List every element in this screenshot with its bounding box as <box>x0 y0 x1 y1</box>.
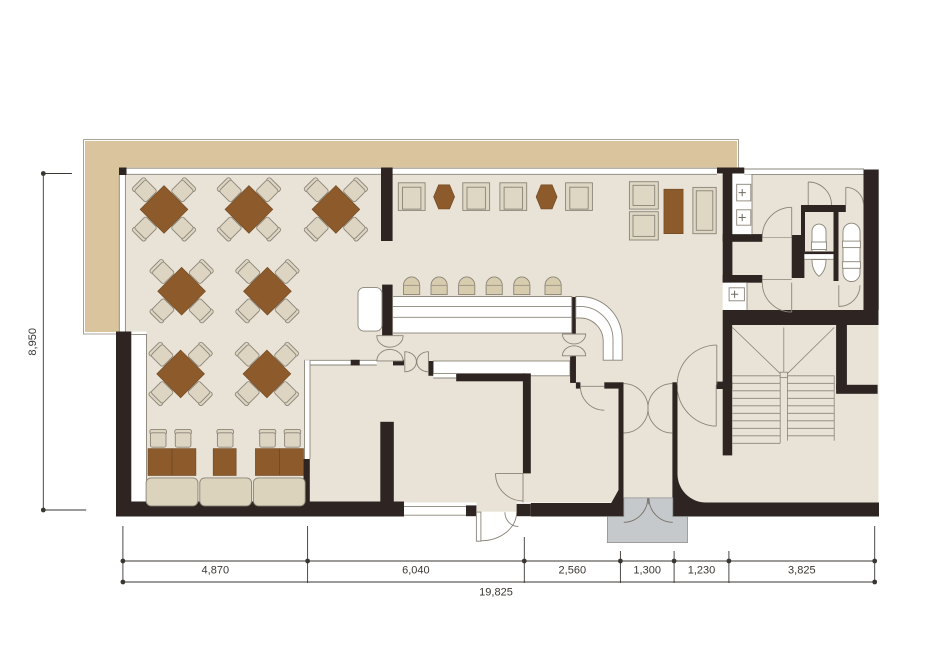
svg-text:8,950: 8,950 <box>27 328 39 356</box>
svg-text:1,300: 1,300 <box>633 565 661 577</box>
svg-text:1,230: 1,230 <box>688 565 716 577</box>
svg-text:4,870: 4,870 <box>202 565 230 577</box>
svg-text:2,560: 2,560 <box>559 565 587 577</box>
svg-text:3,825: 3,825 <box>788 565 816 577</box>
svg-text:19,825: 19,825 <box>479 587 513 599</box>
svg-text:6,040: 6,040 <box>402 565 430 577</box>
